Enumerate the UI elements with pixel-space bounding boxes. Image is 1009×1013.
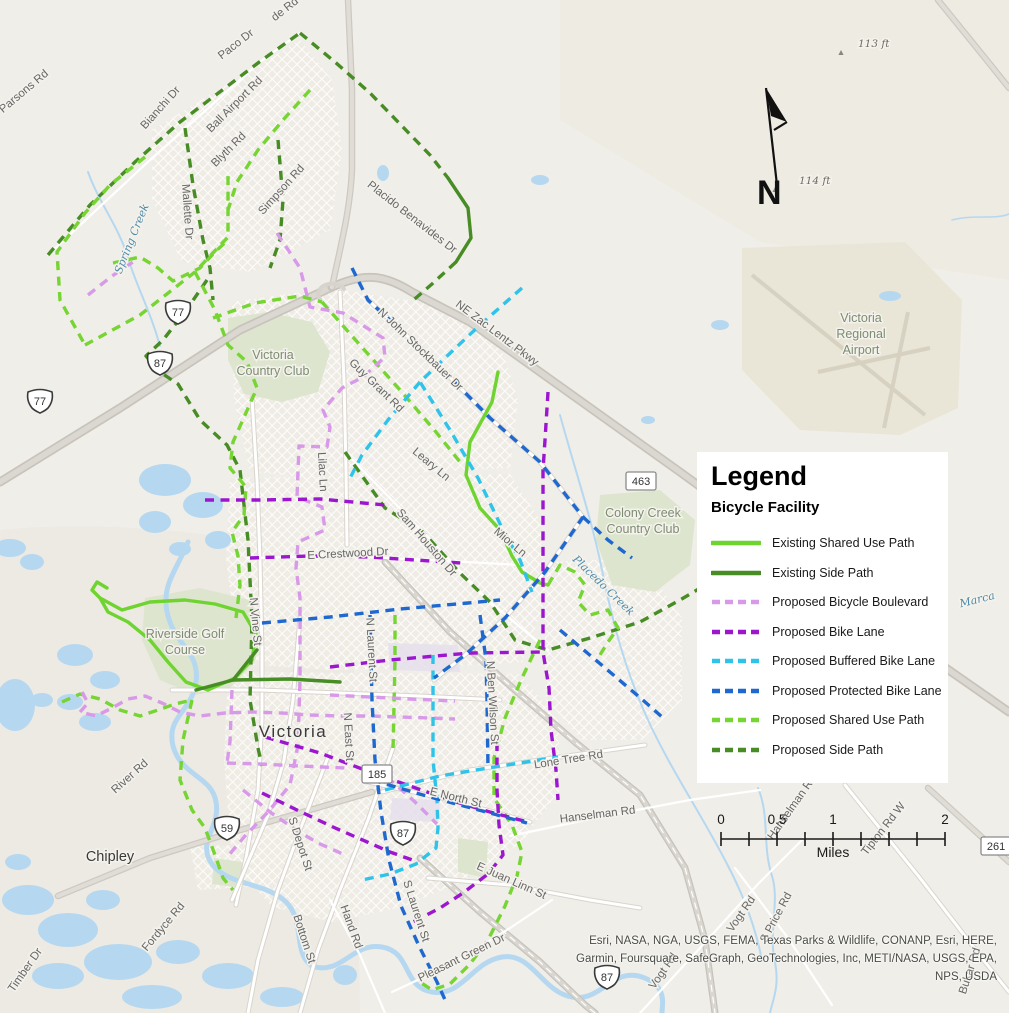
- legend-subtitle: Bicycle Facility: [711, 499, 936, 516]
- map-label: Chipley: [86, 849, 135, 865]
- lake: [377, 165, 389, 181]
- area-label: Victoria: [252, 348, 294, 362]
- legend-swatch-es: [711, 539, 761, 547]
- state-highway-shield: 463: [626, 472, 656, 490]
- lake: [711, 320, 729, 330]
- svg-text:261: 261: [987, 841, 1005, 853]
- lake: [879, 291, 901, 301]
- area-label: Course: [165, 643, 205, 657]
- area-label: Airport: [843, 343, 880, 357]
- legend-swatch-ex: [711, 569, 761, 577]
- legend-swatch-bl: [711, 628, 761, 636]
- map-label: Lilac Ln: [315, 452, 329, 492]
- legend-swatch-bb: [711, 598, 761, 606]
- area-label: Country Club: [607, 522, 680, 536]
- legend-title: Legend: [711, 462, 936, 490]
- map-label: Victoria: [259, 722, 327, 741]
- lake: [139, 464, 191, 496]
- lake: [38, 913, 98, 947]
- bikeway-su: [393, 615, 395, 752]
- lake: [57, 644, 93, 666]
- lake: [139, 511, 171, 533]
- elevation-label: 113 ft: [858, 38, 890, 50]
- lake: [156, 940, 200, 964]
- scale-bar: 00.512 Miles: [714, 810, 954, 866]
- legend-item: Existing Shared Use Path: [711, 528, 936, 558]
- area-label: Regional: [836, 327, 885, 341]
- attribution-line: Garmin, Foursquare, SafeGraph, GeoTechno…: [437, 950, 997, 968]
- legend-item-label: Proposed Bike Lane: [772, 625, 885, 639]
- legend-item: Proposed Buffered Bike Lane: [711, 646, 936, 676]
- legend-item-label: Proposed Protected Bike Lane: [772, 684, 942, 698]
- lake: [20, 554, 44, 570]
- legend-item: Proposed Shared Use Path: [711, 705, 936, 735]
- lake: [333, 965, 357, 985]
- lake: [183, 492, 223, 518]
- svg-text:77: 77: [34, 396, 46, 408]
- lake: [32, 963, 84, 989]
- legend-item: Proposed Side Path: [711, 735, 936, 765]
- lake: [90, 671, 120, 689]
- legend-item-label: Proposed Shared Use Path: [772, 713, 924, 727]
- svg-text:463: 463: [632, 476, 650, 488]
- lake: [202, 963, 254, 989]
- area-label: Country Club: [237, 364, 310, 378]
- scale-label: 2: [941, 812, 949, 827]
- legend-panel: Legend Bicycle Facility Existing Shared …: [697, 452, 948, 783]
- lake: [531, 175, 549, 185]
- lake: [57, 694, 83, 710]
- north-arrow: N: [750, 78, 804, 210]
- legend-items: Existing Shared Use PathExisting Side Pa…: [711, 528, 936, 764]
- legend-item: Existing Side Path: [711, 558, 936, 588]
- area-label: Riverside Golf: [146, 627, 225, 641]
- legend-swatch-sp: [711, 746, 761, 754]
- lake: [86, 890, 120, 910]
- svg-text:185: 185: [368, 769, 386, 781]
- svg-text:59: 59: [221, 823, 233, 835]
- legend-item-label: Proposed Side Path: [772, 743, 883, 757]
- scale-label: 1: [829, 812, 837, 827]
- area-label: Victoria: [840, 311, 882, 325]
- map: VictoriaChipleyParsons RdBianchi DrPaco …: [0, 0, 1009, 1013]
- scale-label: 0: [717, 812, 725, 827]
- lake: [5, 854, 31, 870]
- lake: [122, 985, 182, 1009]
- legend-swatch-bf: [711, 657, 761, 665]
- state-highway-shield: 261: [981, 837, 1009, 855]
- legend-item-label: Existing Side Path: [772, 566, 873, 580]
- map-attribution: Esri, NASA, NGA, USGS, FEMA, Texas Parks…: [437, 932, 997, 986]
- lake: [2, 885, 54, 915]
- lake: [260, 987, 304, 1007]
- state-highway-shield: 185: [362, 765, 392, 783]
- lake: [641, 416, 655, 424]
- lake: [79, 713, 111, 731]
- scale-bar-unit: Miles: [721, 844, 945, 860]
- scale-label: 0.5: [768, 812, 787, 827]
- legend-item: Proposed Bike Lane: [711, 617, 936, 647]
- legend-item: Proposed Protected Bike Lane: [711, 676, 936, 706]
- legend-item: Proposed Bicycle Boulevard: [711, 587, 936, 617]
- lake: [205, 531, 231, 549]
- north-arrow-label: N: [757, 174, 782, 210]
- legend-item-label: Proposed Bicycle Boulevard: [772, 595, 928, 609]
- svg-text:87: 87: [154, 358, 166, 370]
- legend-swatch-su: [711, 716, 761, 724]
- attribution-line: NPS, USDA: [437, 968, 997, 986]
- legend-swatch-pb: [711, 687, 761, 695]
- area-label: Colony Creek: [605, 506, 681, 520]
- legend-item-label: Existing Shared Use Path: [772, 536, 914, 550]
- lake: [84, 944, 152, 980]
- legend-item-label: Proposed Buffered Bike Lane: [772, 654, 935, 668]
- attribution-line: Esri, NASA, NGA, USGS, FEMA, Texas Parks…: [437, 932, 997, 950]
- svg-text:77: 77: [172, 307, 184, 319]
- svg-text:87: 87: [397, 828, 409, 840]
